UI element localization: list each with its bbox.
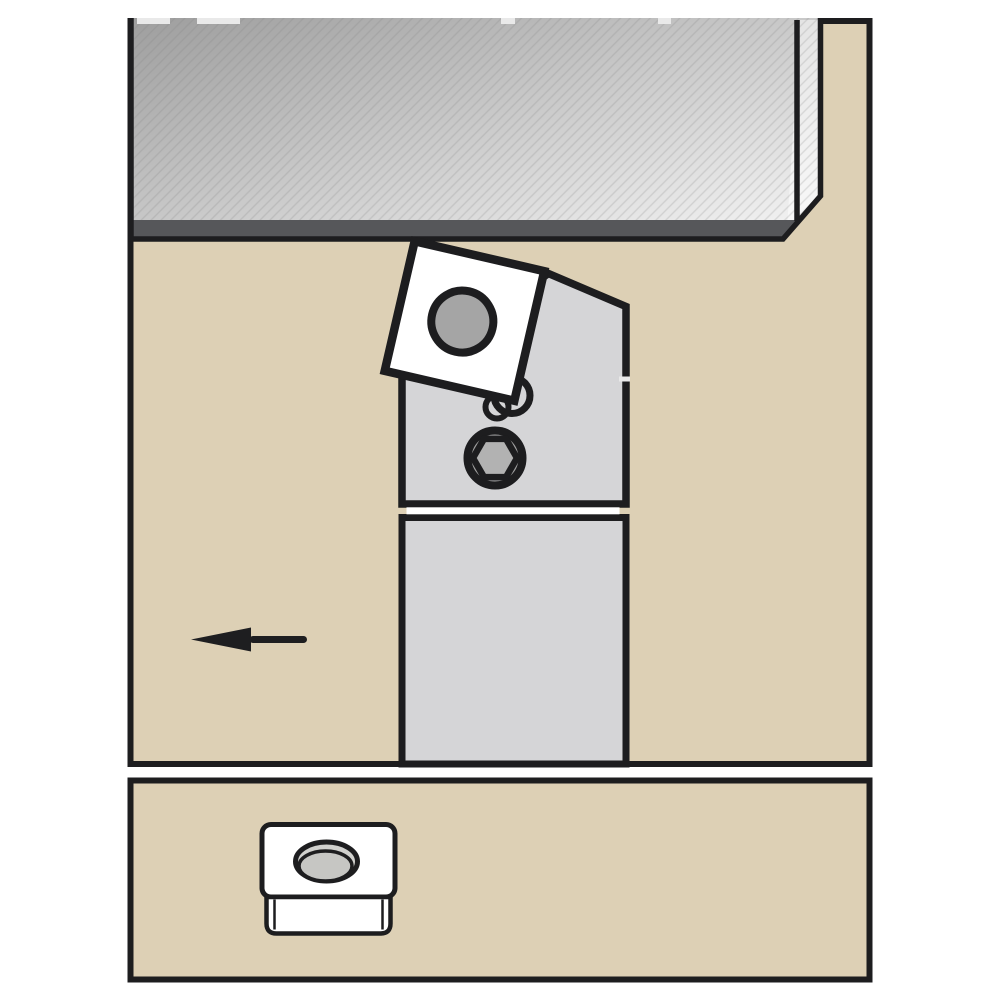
border-gap [137, 18, 170, 24]
shank-body [402, 518, 626, 765]
arrow-shaft [250, 636, 308, 643]
head-edge-notch [619, 377, 630, 382]
head-shank-joint-gap [407, 507, 620, 514]
indexable-insert [385, 241, 545, 401]
workpiece-hatching [131, 18, 821, 239]
main-view-panel [131, 18, 870, 764]
insert-side-face [267, 897, 391, 934]
machined-surface-band [131, 220, 801, 237]
tooling-diagram [0, 0, 1000, 1000]
insert-center-hole-bore [299, 851, 352, 881]
border-gap [197, 18, 240, 24]
border-gap [658, 18, 671, 24]
border-gap [501, 18, 515, 24]
tool-shank [402, 507, 626, 764]
detail-panel-frame [131, 781, 870, 980]
detail-view-panel [131, 781, 870, 980]
clamp-screw [468, 431, 523, 486]
workpiece [131, 18, 821, 239]
insert-3d-view [262, 825, 395, 934]
hex-socket-icon [473, 439, 517, 477]
illustration-canvas [0, 0, 1000, 1000]
